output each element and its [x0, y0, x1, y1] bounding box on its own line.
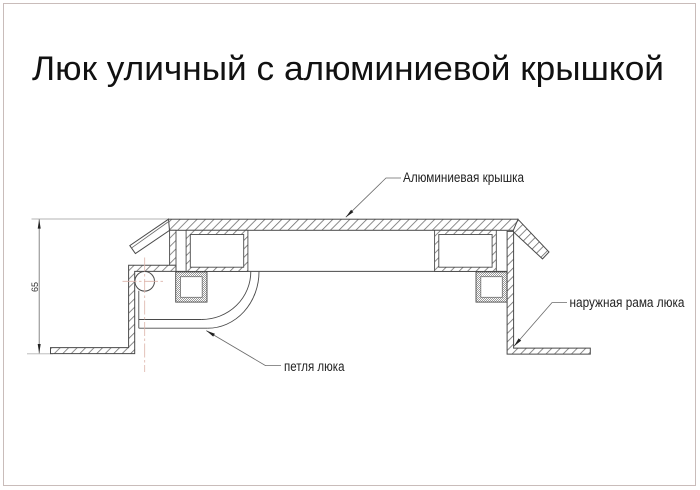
svg-text:петля люка: петля люка	[284, 359, 345, 374]
svg-text:65: 65	[30, 282, 40, 292]
svg-text:наружная рама люка: наружная рама люка	[570, 295, 685, 310]
svg-text:Люк уличный с алюминиевой крыш: Люк уличный с алюминиевой крышкой	[32, 50, 664, 88]
svg-text:Алюминиевая крышка: Алюминиевая крышка	[403, 170, 524, 185]
